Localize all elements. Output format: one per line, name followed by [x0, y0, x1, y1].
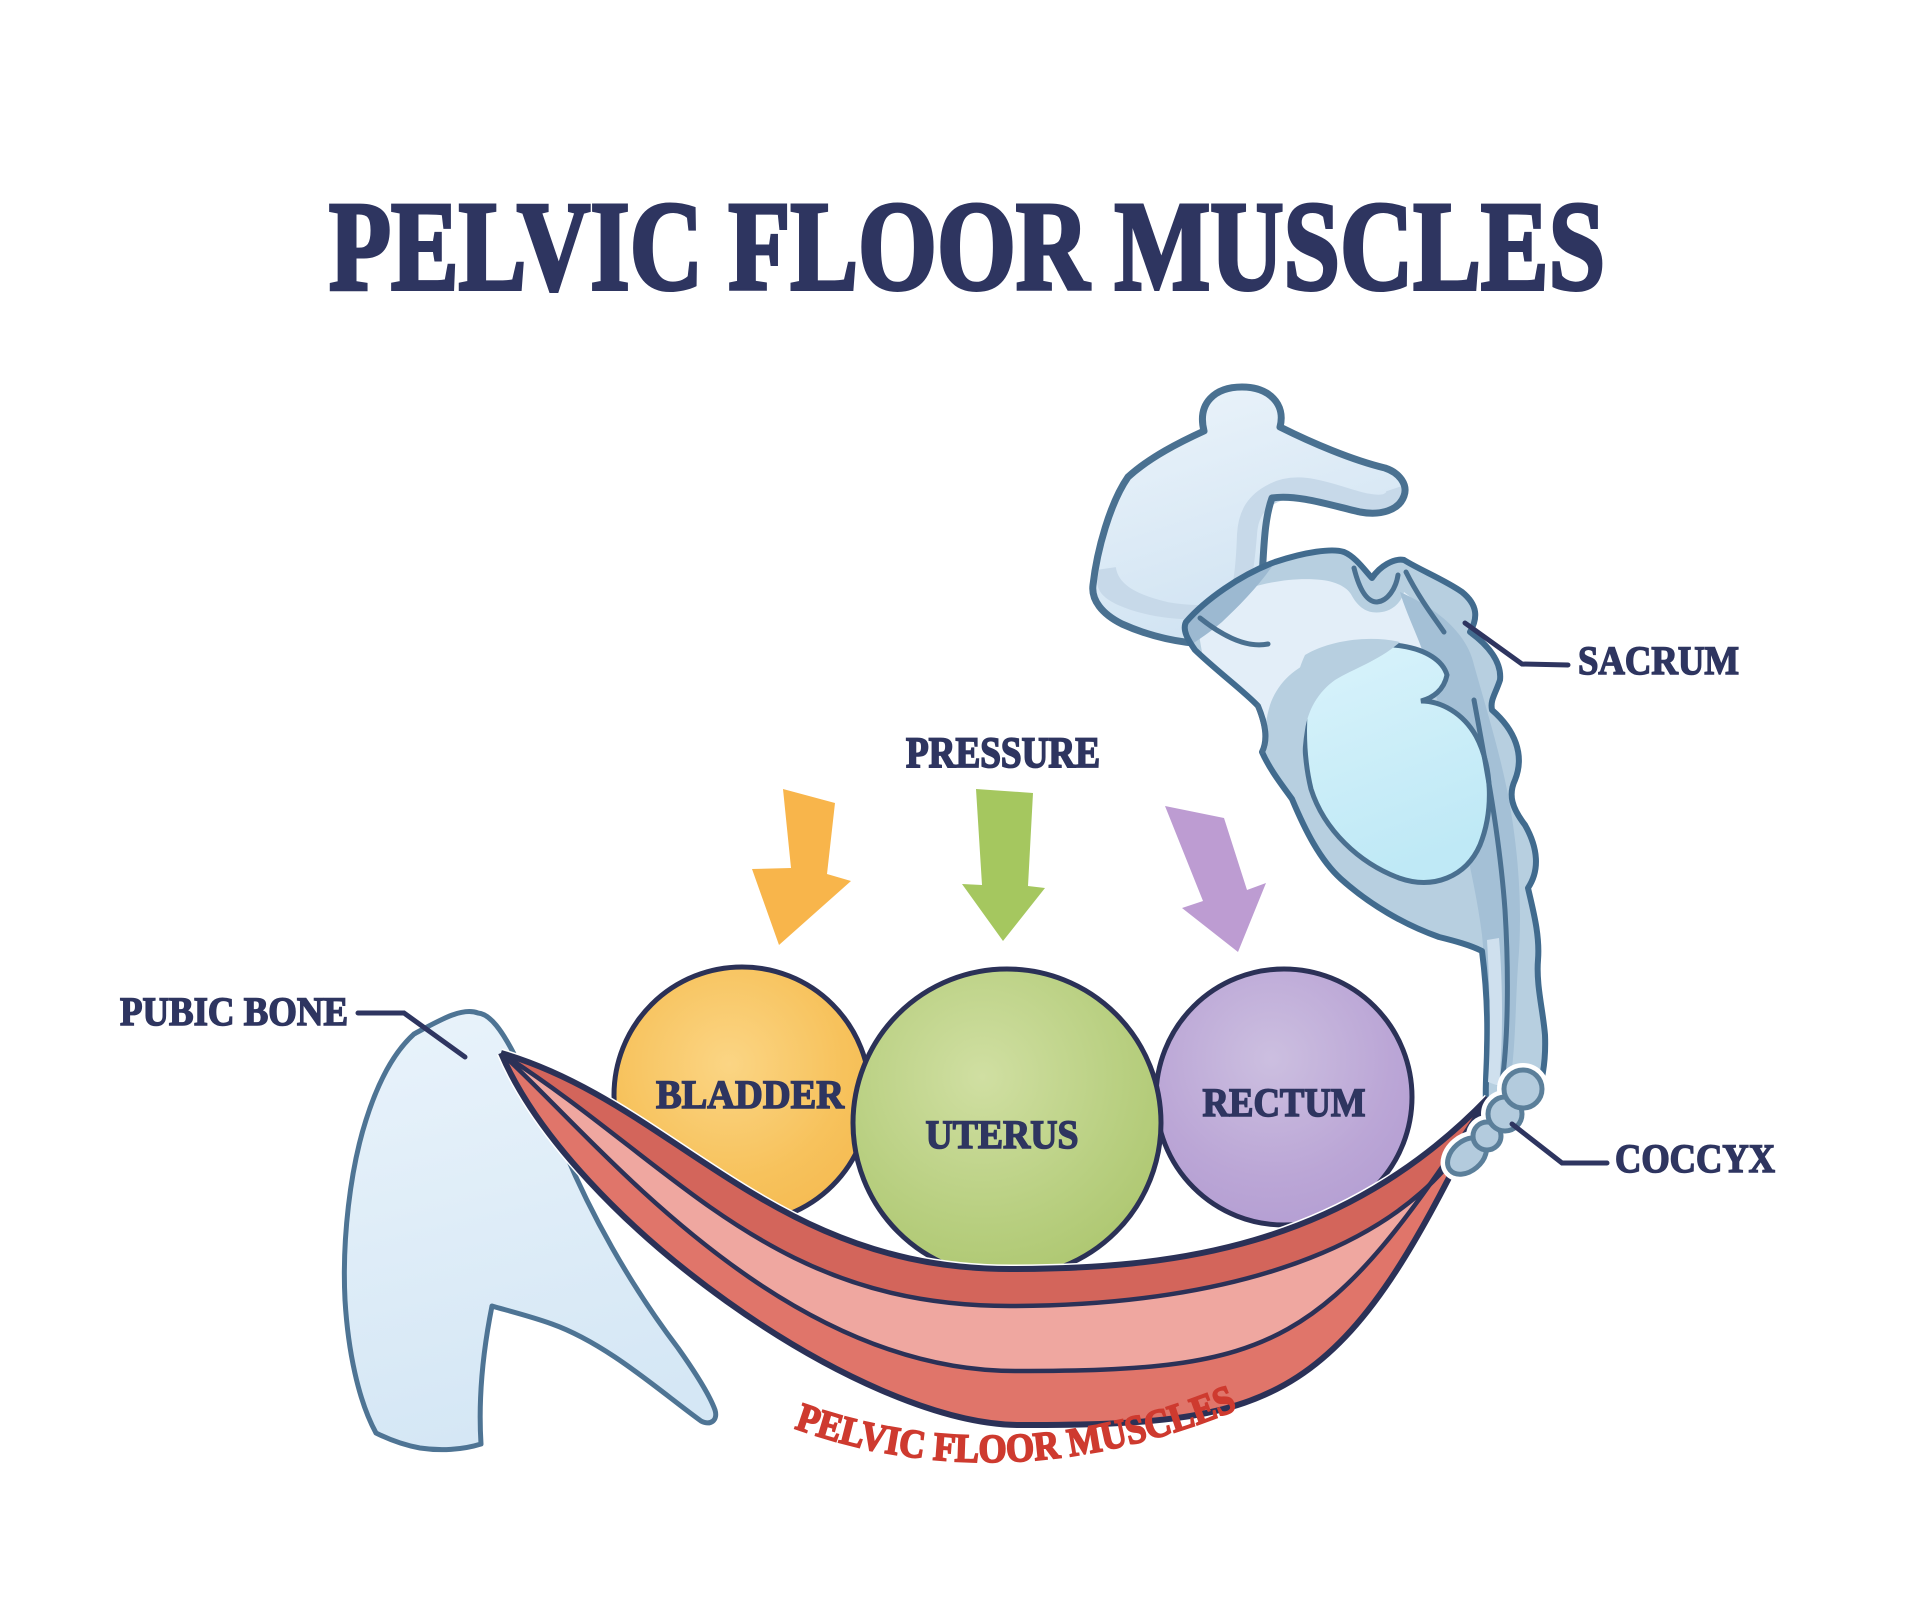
- svg-text:PUBIC BONE: PUBIC BONE: [120, 989, 348, 1034]
- svg-text:BLADDER: BLADDER: [656, 1072, 845, 1117]
- svg-text:SACRUM: SACRUM: [1578, 638, 1739, 683]
- svg-text:PRESSURE: PRESSURE: [906, 730, 1100, 777]
- svg-text:PELVIC FLOOR MUSCLES: PELVIC FLOOR MUSCLES: [329, 177, 1605, 317]
- svg-text:RECTUM: RECTUM: [1203, 1080, 1366, 1125]
- svg-text:COCCYX: COCCYX: [1615, 1136, 1775, 1181]
- svg-text:UTERUS: UTERUS: [926, 1112, 1079, 1157]
